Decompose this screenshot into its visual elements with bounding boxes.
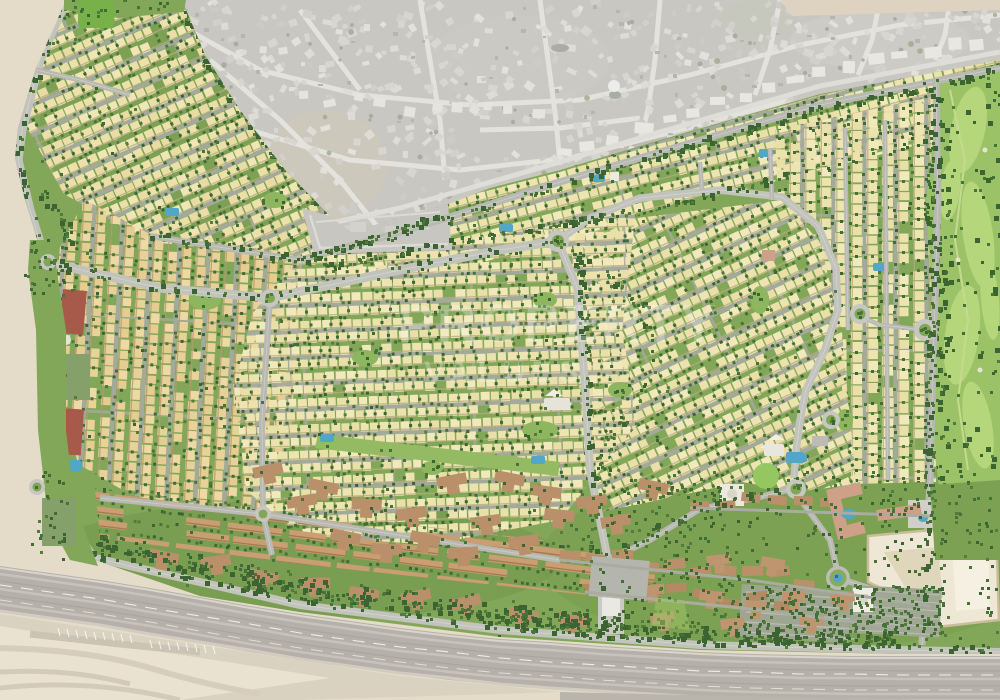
svg-text:VALUES: VALUES: [424, 356, 585, 389]
svg-text:PROPERTY: PROPERTY: [398, 294, 719, 354]
